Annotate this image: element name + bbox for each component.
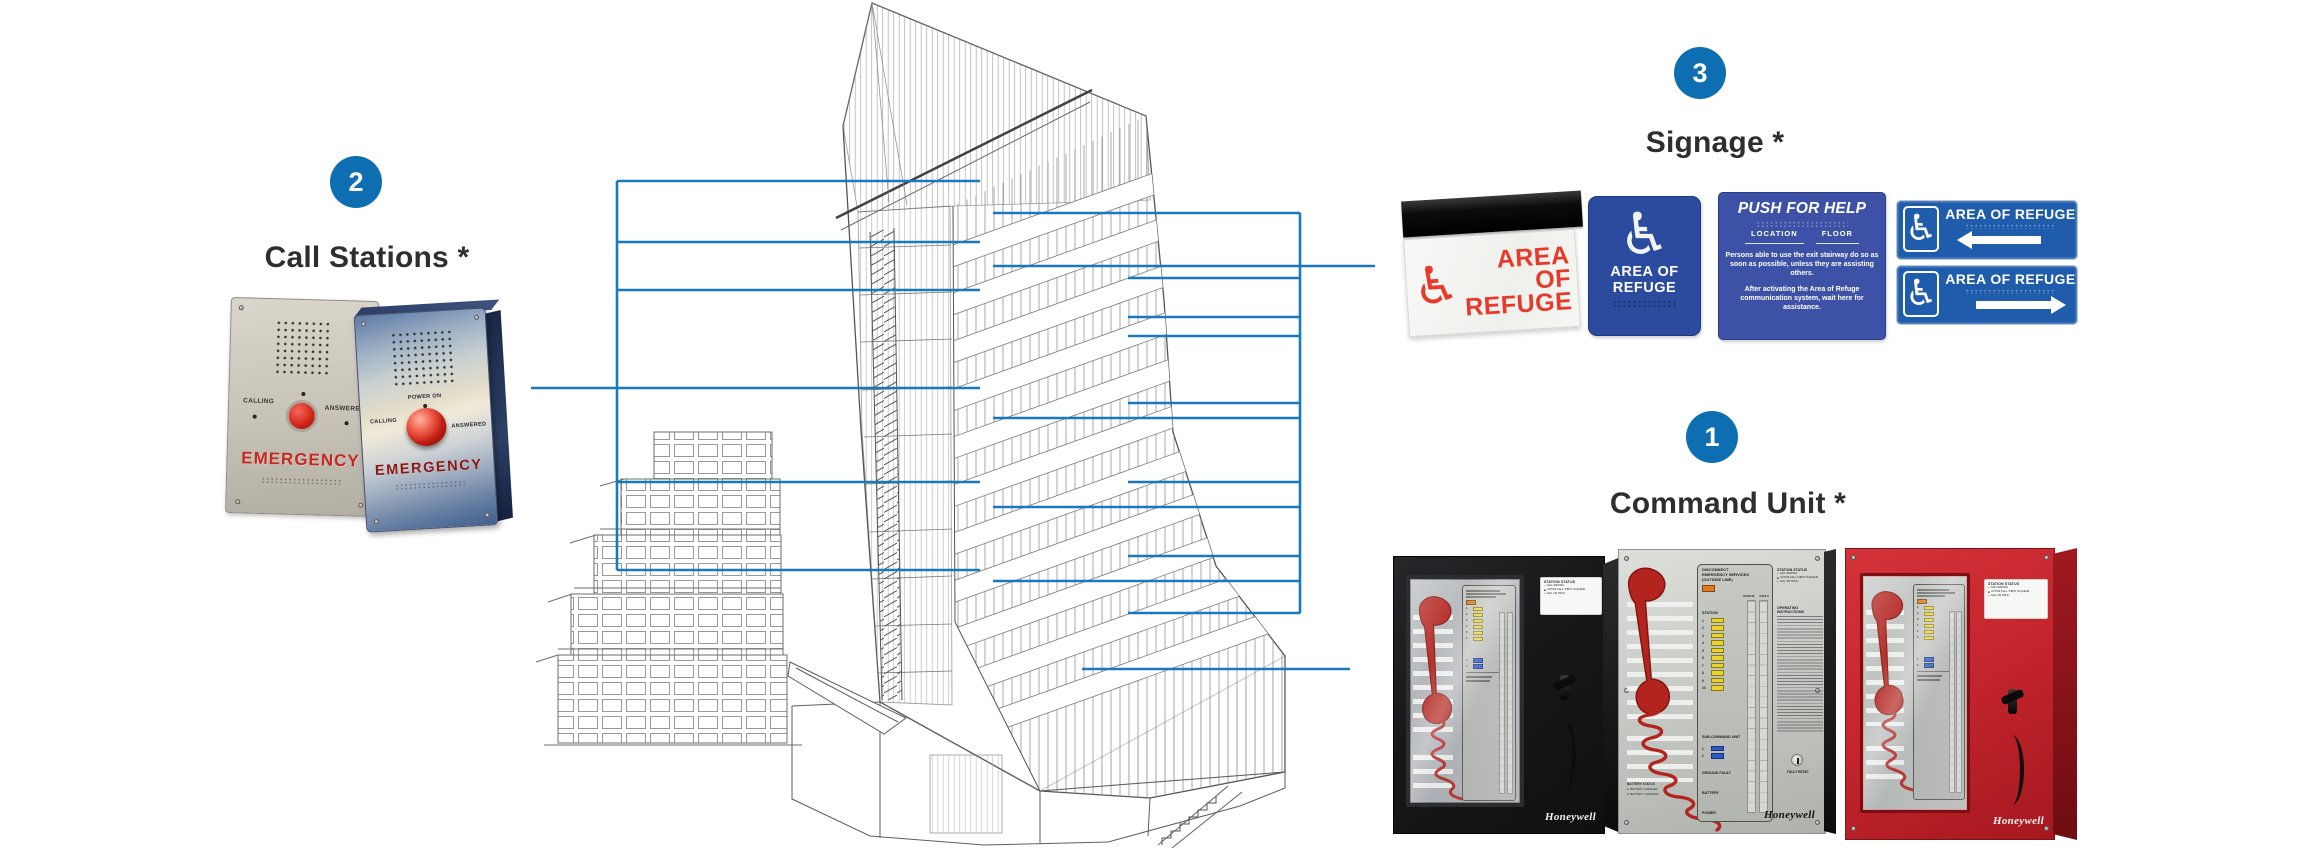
cabinet: 12345612 STATION STATUS *CALL WAITING■AC… <box>1845 548 2055 840</box>
directional-signs: ♿ AREA OF REFUGE ♿ AREA OF REFUGE <box>1896 200 2078 330</box>
ground-fault-label: GROUND FAULT <box>1702 771 1731 775</box>
braille-strip <box>1965 289 2056 294</box>
braille-strip <box>1756 221 1848 227</box>
sign-instructions-1: Persons able to use the exit stairway do… <box>1725 251 1879 278</box>
disconnect-button <box>1702 585 1715 592</box>
push-for-help-sign: PUSH FOR HELP LOCATION FLOOR Persons abl… <box>1718 192 1886 340</box>
station-status-card: STATION STATUS *CALL WAITING■ACTIVE CALL… <box>1984 579 2048 619</box>
command-unit-red: 12345612 STATION STATUS *CALL WAITING■AC… <box>1845 548 2077 840</box>
command-unit-black: 12345612 STATION STATUS *CALL WAITING■AC… <box>1393 556 1623 834</box>
door-handle <box>2010 735 2024 805</box>
cabinet-window: 12345612 <box>1406 575 1524 807</box>
station-row: 4 <box>1702 640 1724 645</box>
fault-indicator-column <box>1759 600 1768 813</box>
panel-header-line: (OUTSIDE LINE) <box>1702 578 1772 583</box>
cabinet: 12345612 STATION STATUS *CALL WAITING■AC… <box>1393 556 1605 834</box>
badge-call-stations: 2 <box>330 156 382 208</box>
wheelchair-icon-box: ♿ <box>1903 206 1939 252</box>
sub-command-row: 2 <box>1702 753 1724 758</box>
calling-label: CALLING <box>243 397 274 405</box>
answered-label: ANSWERED <box>451 421 486 429</box>
command-unit-stainless: DISCONNECT EMERGENCY SERVICES (OUTSIDE L… <box>1618 549 1836 834</box>
operating-instructions: OPERATING INSTRUCTIONS <box>1777 606 1825 734</box>
sign-instructions-2: After activating the Area of Refuge comm… <box>1725 285 1879 312</box>
battery-status-legend: BATTERY STATUS ●BATTERY CHARGED●BATTERY … <box>1627 782 1659 796</box>
status-legend-row: *CALL ON HOLD <box>1777 581 1825 584</box>
sub-command-button-rows: 12 <box>1702 746 1724 759</box>
control-panel: DISCONNECT EMERGENCY SERVICES (OUTSIDE L… <box>1697 564 1773 822</box>
braille-strip <box>261 477 341 485</box>
battery-legend-row: ●BATTERY CHARGING <box>1627 792 1659 796</box>
status-led <box>301 392 305 396</box>
wheelchair-icon: ♿ <box>1905 211 1937 247</box>
sign-line: REFUGE <box>1610 281 1678 297</box>
status-indicator-column <box>1747 600 1756 813</box>
fault-reset-keyhole <box>1791 754 1803 766</box>
station-row: 9 <box>1702 678 1724 683</box>
braille-strip <box>1965 224 2056 229</box>
sign-line: AREA OF <box>1610 265 1678 281</box>
fault-column-label: FAULT <box>1760 594 1769 598</box>
emergency-label: EMERGENCY <box>363 456 494 480</box>
edge-lit-area-of-refuge-sign: ♿ AREA OF REFUGE <box>1402 190 1584 338</box>
battery-status-title: BATTERY STATUS <box>1627 782 1659 786</box>
station-row: 8 <box>1702 670 1724 675</box>
left-arrow-icon <box>1963 236 2041 244</box>
braille-strip <box>395 480 465 490</box>
braille-strip <box>1612 300 1678 307</box>
floor-label: FLOOR <box>1816 229 1859 244</box>
call-station-stainless: POWER ON CALLING ANSWERED EMERGENCY <box>354 307 499 532</box>
directional-sign-right-arrow: ♿ AREA OF REFUGE <box>1896 265 2078 325</box>
honeywell-logo: Honeywell <box>1993 815 2044 827</box>
status-column-label: STATUS <box>1743 594 1755 598</box>
directional-sign-left-arrow: ♿ AREA OF REFUGE <box>1896 200 2078 260</box>
battery-legend-row: ●BATTERY CHARGED <box>1627 787 1659 791</box>
station-row: 3 <box>1702 633 1724 638</box>
badge-call-stations-number: 2 <box>348 167 363 198</box>
power-on-label: POWER ON <box>408 393 442 401</box>
station-button-rows: 12345678910 <box>1702 618 1724 691</box>
wheelchair-icon: ♿ <box>1905 276 1937 312</box>
station-row: 7 <box>1702 663 1724 668</box>
red-telephone-handset <box>1613 563 1691 721</box>
badge-command-unit: 1 <box>1686 411 1738 463</box>
speaker-grille <box>390 328 455 388</box>
signage-label: Signage * <box>1565 126 1865 160</box>
instructions-text-lines <box>1777 616 1823 734</box>
badge-signage: 3 <box>1674 47 1726 99</box>
wheelchair-icon: ♿ <box>1412 259 1462 314</box>
station-row: 1 <box>1702 618 1724 623</box>
cabinet-side <box>2053 548 2077 840</box>
station-row: 2 <box>1702 625 1724 630</box>
status-legend-row: *CALL ON HOLD <box>1988 595 2044 598</box>
sign-panel: ♿ AREA OF REFUGE <box>1403 229 1581 337</box>
sign-text: AREA OF REFUGE <box>1945 206 2075 222</box>
command-unit-label: Command Unit * <box>1578 487 1878 521</box>
ada-area-of-refuge-plaque: ♿ AREA OF REFUGE <box>1588 196 1701 336</box>
honeywell-logo: Honeywell <box>1545 811 1596 823</box>
sub-command-row: 1 <box>1702 746 1724 751</box>
speaker-grille <box>274 319 334 377</box>
battery-label: BATTERY <box>1702 791 1719 795</box>
fault-reset-label: FAULT RESET <box>1781 770 1815 774</box>
emergency-call-button <box>405 407 447 447</box>
badge-signage-number: 3 <box>1692 58 1707 89</box>
sign-text: AREA OF REFUGE <box>1945 271 2075 287</box>
power-label: POWER <box>1702 811 1716 815</box>
faceplate: DISCONNECT EMERGENCY SERVICES (OUTSIDE L… <box>1618 549 1826 834</box>
right-arrow-icon <box>1976 301 2060 309</box>
wheelchair-icon-box: ♿ <box>1903 271 1939 317</box>
door-handle <box>1562 719 1576 791</box>
t-handle-lock <box>2008 689 2017 714</box>
station-status-card: STATION STATUS *CALL WAITING■ACTIVE CALL… <box>1540 577 1602 615</box>
honeywell-logo: Honeywell <box>1764 809 1815 821</box>
building-wireframe <box>536 3 1293 848</box>
call-station-faceplate: POWER ON CALLING ANSWERED EMERGENCY <box>354 307 499 532</box>
status-legend-row: *CALL ON HOLD <box>1544 593 1598 596</box>
calling-label: CALLING <box>370 418 397 426</box>
sign-line: REFUGE <box>1460 290 1573 320</box>
badge-command-unit-number: 1 <box>1704 422 1719 453</box>
emergency-call-button <box>285 400 318 433</box>
station-row: 5 <box>1702 648 1724 653</box>
wheelchair-icon: ♿ <box>1619 205 1671 263</box>
t-handle-lock <box>1560 675 1569 700</box>
call-stations-label: Call Stations * <box>217 241 517 275</box>
push-for-help-title: PUSH FOR HELP <box>1725 200 1879 218</box>
cabinet-side <box>1824 549 1836 834</box>
cabinet-window: 12345612 <box>1860 573 1970 813</box>
station-status-legend: STATION STATUS *CALL WAITING■ACTIVE CALL… <box>1777 568 1825 584</box>
sub-command-label: SUB-COMMAND UNIT <box>1702 735 1746 739</box>
area-of-refuge-infographic: 2 Call Stations * CALLING ANSWERED EMERG… <box>0 0 2311 848</box>
station-section-label: STATION <box>1702 611 1718 615</box>
emergency-label: EMERGENCY <box>227 448 374 472</box>
station-row: 10 <box>1702 685 1724 690</box>
station-row: 6 <box>1702 655 1724 660</box>
location-label: LOCATION <box>1745 229 1804 244</box>
operating-instructions-title: OPERATING INSTRUCTIONS <box>1777 606 1825 614</box>
